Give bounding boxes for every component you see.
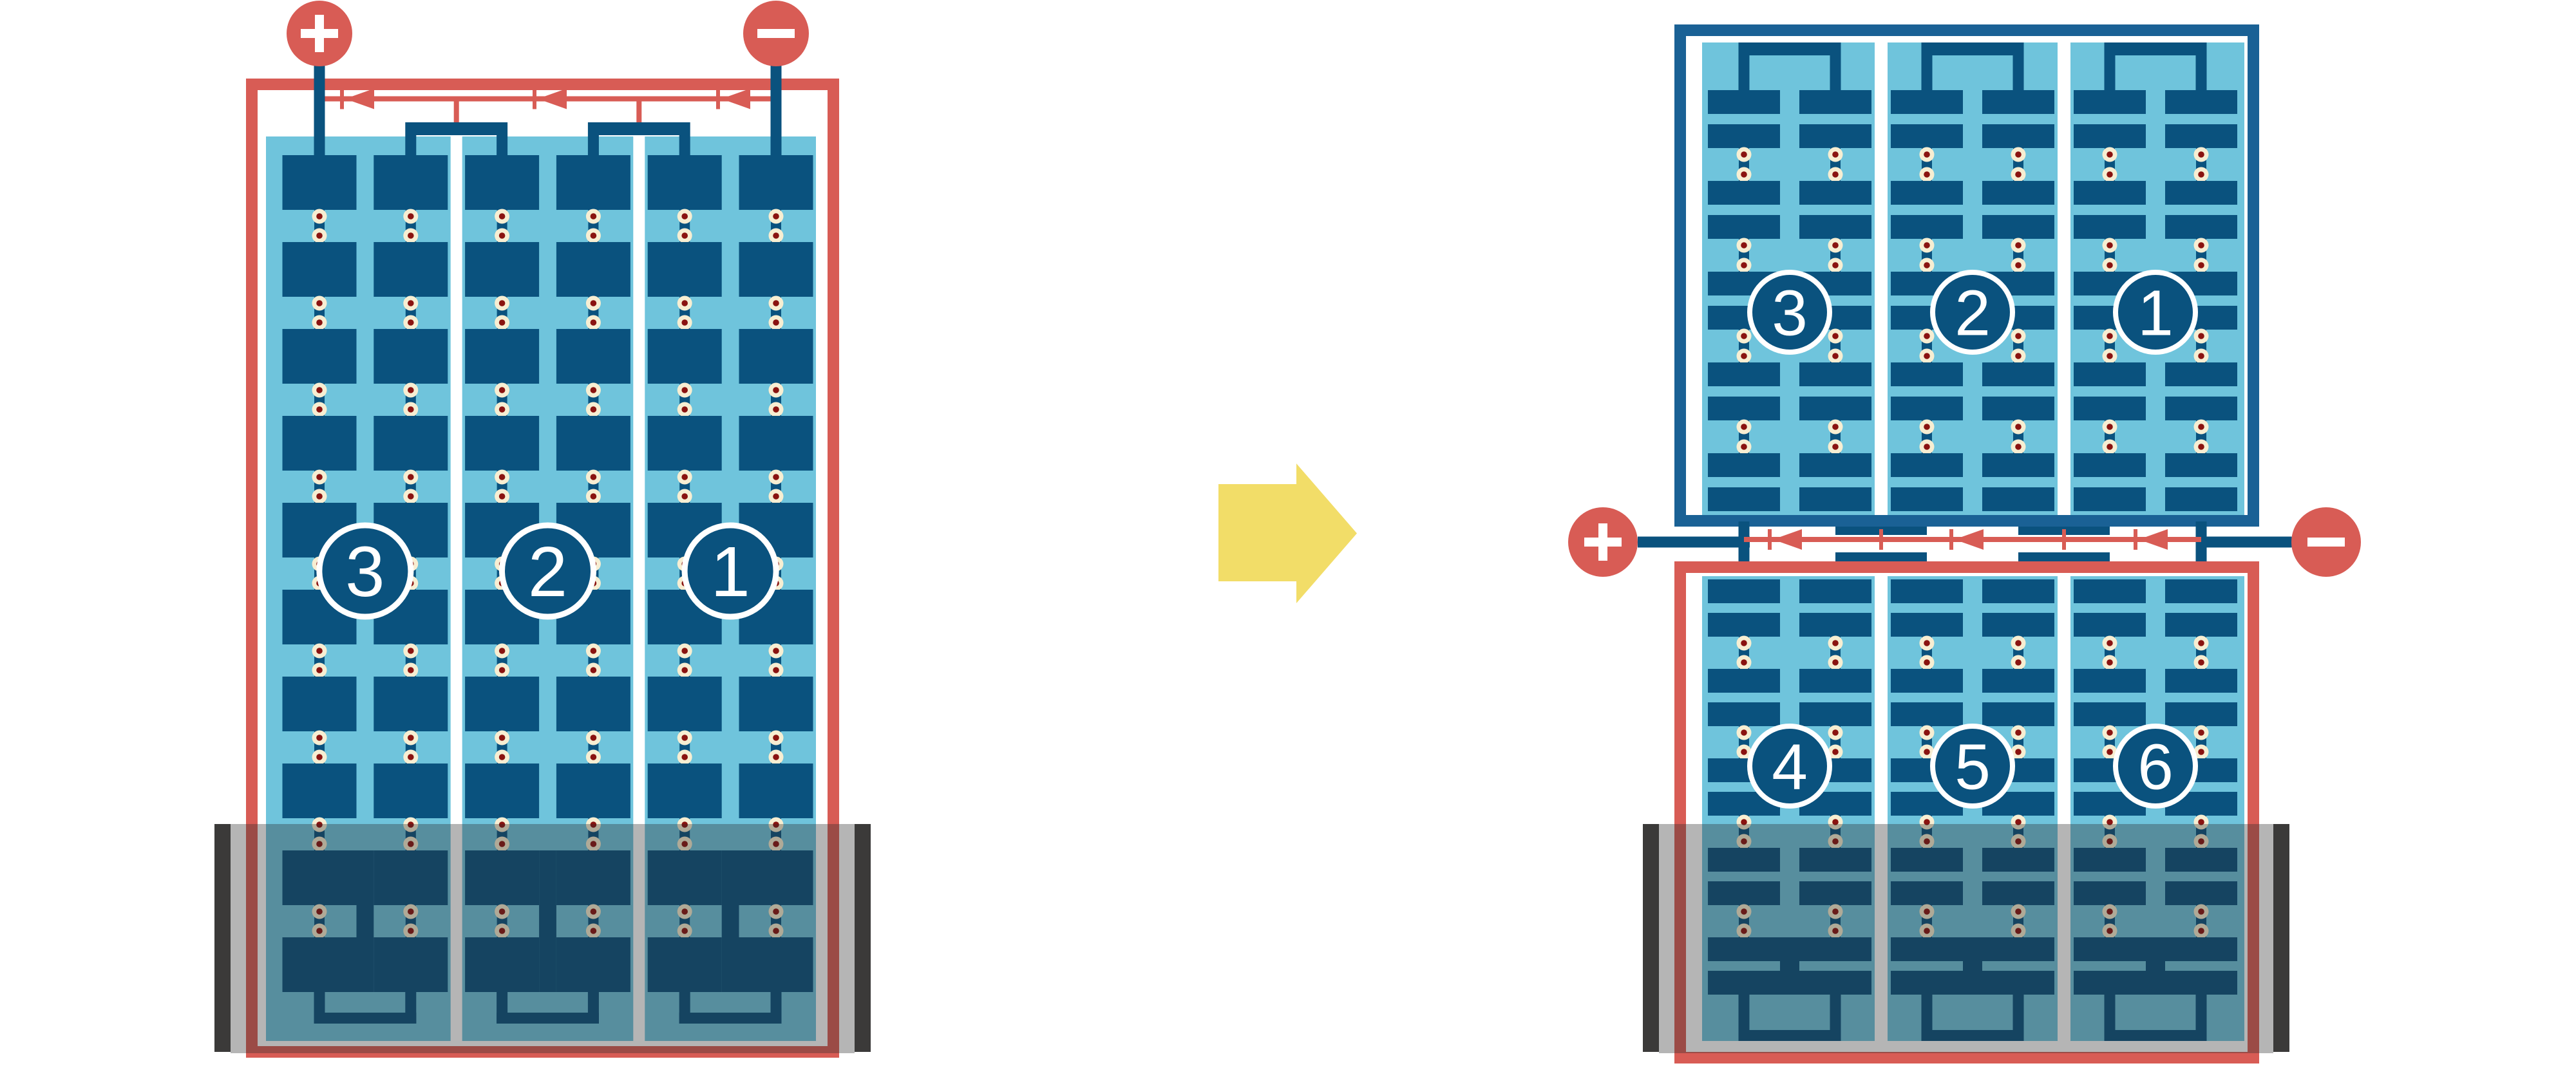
half-cut-module-comparison-diagram: 321321456	[0, 0, 2576, 1068]
rivet-dot-core	[408, 319, 414, 326]
cell	[2074, 579, 2146, 603]
rivet-dot-core	[499, 319, 506, 326]
rivet-dot-core	[591, 667, 597, 673]
diode-cathode-bar	[340, 89, 344, 109]
rivet-dot-core	[2107, 242, 2113, 248]
rivet-dot-core	[773, 474, 779, 480]
cell	[2074, 362, 2146, 386]
cell	[2165, 124, 2237, 148]
rivet-dot-core	[773, 232, 779, 239]
rivet-dot-core	[2198, 333, 2204, 339]
cell	[648, 155, 722, 210]
cell	[374, 329, 448, 384]
cell	[1891, 124, 1963, 148]
cell	[1891, 487, 1963, 511]
rivet-dot-core	[2198, 640, 2204, 646]
rivet-dot-core	[591, 493, 597, 500]
cell	[1799, 397, 1871, 420]
rivet-dot-core	[773, 319, 779, 326]
rivet-dot-core	[499, 474, 506, 480]
rivet-dot-core	[773, 648, 779, 654]
cell	[1891, 669, 1963, 693]
icon-bar	[315, 15, 324, 52]
cell	[1708, 90, 1780, 114]
rivet-dot-core	[1832, 659, 1839, 666]
loop-bar	[1739, 42, 1841, 55]
rivet-dot-core	[1832, 424, 1839, 430]
cell	[739, 764, 813, 818]
rivet-dot-core	[2107, 171, 2113, 178]
cell	[2165, 397, 2237, 420]
rivet-dot-core	[2015, 151, 2022, 158]
shade-edge-bar	[1643, 824, 1659, 1052]
rivet-dot-core	[773, 493, 779, 500]
rivet-dot-core	[1741, 659, 1747, 666]
loop-leg	[1830, 55, 1841, 90]
loop-leg	[679, 135, 690, 155]
cell	[1799, 613, 1871, 637]
cell	[1799, 579, 1871, 603]
rivet-dot-core	[316, 232, 323, 239]
rivet-dot-core	[499, 735, 506, 741]
rivet-dot-core	[681, 474, 688, 480]
cell	[1982, 362, 2054, 386]
cell	[374, 764, 448, 818]
string-number-label: 4	[1772, 731, 1808, 803]
rivet-dot-core	[1924, 171, 1930, 178]
rivet-dot-core	[773, 735, 779, 741]
rivet-dot-core	[408, 232, 414, 239]
rivet-dot-core	[681, 319, 688, 326]
cell	[2165, 613, 2237, 637]
cell	[1891, 215, 1963, 239]
cell	[2165, 669, 2237, 693]
diode-arrow	[2139, 529, 2168, 550]
cell	[739, 677, 813, 731]
string-number-label: 6	[2137, 731, 2173, 803]
rivet-dot-core	[681, 667, 688, 673]
rivet-dot-core	[316, 474, 323, 480]
rivet-dot-core	[2107, 749, 2113, 755]
rivet-dot-core	[1741, 640, 1747, 646]
cell	[648, 329, 722, 384]
cell	[2165, 487, 2237, 511]
cell	[1982, 669, 2054, 693]
cell	[739, 329, 813, 384]
rivet-dot-core	[2107, 353, 2113, 359]
cell	[283, 416, 357, 471]
cell	[465, 329, 539, 384]
right-top-module: 321	[1680, 30, 2253, 521]
rivet-dot-core	[2015, 242, 2022, 248]
string-number-label: 1	[2137, 277, 2173, 350]
rivet-dot-core	[2015, 659, 2022, 666]
series-tab	[2018, 552, 2110, 561]
rivet-dot-core	[1924, 424, 1930, 430]
rivet-dot-core	[591, 406, 597, 413]
cell	[1982, 613, 2054, 637]
loop-leg	[1922, 55, 1933, 90]
rivet-dot-core	[499, 667, 506, 673]
rivet-dot-core	[1741, 262, 1747, 268]
rivet-dot-core	[681, 213, 688, 220]
cell	[283, 764, 357, 818]
rivet-dot-core	[408, 648, 414, 654]
diode-cathode-bar	[2134, 529, 2137, 550]
loop-leg	[2105, 55, 2116, 90]
rivet-dot-core	[316, 387, 323, 393]
rivet-dot-core	[2198, 444, 2204, 450]
terminal-negative	[743, 1, 809, 66]
rivet-dot-core	[681, 735, 688, 741]
rivet-dot-core	[2198, 659, 2204, 666]
cell	[1982, 579, 2054, 603]
cell	[2074, 90, 2146, 114]
rivet-dot-core	[1924, 353, 1930, 359]
rivet-dot-core	[2015, 729, 2022, 736]
diode-drop-line	[636, 98, 641, 124]
cell	[1891, 453, 1963, 477]
cell	[1891, 613, 1963, 637]
cell	[1982, 397, 2054, 420]
rivet-dot-core	[316, 735, 323, 741]
rivet-dot-core	[773, 387, 779, 393]
cell	[1891, 90, 1963, 114]
rivet-dot-core	[2015, 353, 2022, 359]
shade-overlay-left	[214, 824, 871, 1053]
loop-bar	[1922, 42, 2024, 55]
cell	[1982, 90, 2054, 114]
diode-arrow	[1773, 529, 1802, 550]
rivet-dot-core	[2198, 242, 2204, 248]
cell	[283, 677, 357, 731]
rivet-dot-core	[316, 667, 323, 673]
loop-leg	[588, 135, 599, 155]
cell	[1708, 579, 1780, 603]
rivet-dot-core	[2107, 729, 2113, 736]
cell	[648, 677, 722, 731]
rivet-dot-core	[2107, 262, 2113, 268]
terminal-negative	[2291, 507, 2361, 577]
rivet-dot-core	[316, 319, 323, 326]
cell	[1891, 702, 1963, 726]
cell	[1708, 124, 1780, 148]
rivet-dot-core	[408, 213, 414, 220]
rivet-dot-core	[408, 406, 414, 413]
rivet-dot-core	[1741, 444, 1747, 450]
cell	[283, 155, 357, 210]
cell	[2074, 453, 2146, 477]
loop-leg	[405, 135, 416, 155]
loop-bar	[588, 122, 690, 135]
cell	[2165, 579, 2237, 603]
cell	[1799, 702, 1871, 726]
cell	[1891, 181, 1963, 205]
rivet-dot-core	[316, 648, 323, 654]
rivet-dot-core	[1741, 171, 1747, 178]
rivet-dot-core	[2107, 151, 2113, 158]
rivet-dot-core	[591, 319, 597, 326]
diode-arrow	[345, 89, 374, 109]
rivet-dot-core	[681, 493, 688, 500]
cell	[374, 155, 448, 210]
cell	[1891, 397, 1963, 420]
rivet-dot-core	[408, 387, 414, 393]
rivet-dot-core	[2015, 171, 2022, 178]
minus-icon	[757, 29, 795, 38]
loop-leg	[1739, 55, 1750, 90]
icon-bar	[1598, 523, 1607, 561]
rivet-dot-core	[1924, 333, 1930, 339]
rivet-dot-core	[591, 232, 597, 239]
rivet-dot-core	[2107, 444, 2113, 450]
rivet-dot-core	[681, 387, 688, 393]
cell	[1799, 362, 1871, 386]
rivet-dot-core	[1741, 151, 1747, 158]
rivet-dot-core	[1924, 242, 1930, 248]
rivet-dot-core	[1924, 640, 1930, 646]
cell	[1891, 362, 1963, 386]
terminal-positive	[287, 1, 352, 66]
rivet-dot-core	[316, 493, 323, 500]
diode-cathode-bar	[1768, 529, 1772, 550]
rivet-dot-core	[1832, 262, 1839, 268]
rivet-dot-core	[591, 648, 597, 654]
diode-arrow	[538, 89, 567, 109]
cell	[2165, 215, 2237, 239]
rivet-dot-core	[1924, 262, 1930, 268]
cell	[648, 764, 722, 818]
rivet-dot-core	[316, 754, 323, 760]
rivet-dot-core	[1741, 729, 1747, 736]
loop-leg	[2013, 55, 2024, 90]
rivet-dot-core	[499, 300, 506, 306]
shade-panel	[1659, 824, 2273, 1053]
diode-junction-tick	[1879, 529, 1883, 550]
rivet-dot-core	[773, 667, 779, 673]
shade-edge-bar	[2273, 824, 2289, 1052]
cell	[2165, 453, 2237, 477]
rivet-dot-core	[1832, 640, 1839, 646]
cell	[1982, 124, 2054, 148]
rivet-dot-core	[591, 754, 597, 760]
rivet-dot-core	[2107, 640, 2113, 646]
rivet-dot-core	[773, 300, 779, 306]
rivet-dot-core	[1741, 749, 1747, 755]
rivet-dot-core	[1924, 444, 1930, 450]
rivet-dot-core	[2015, 333, 2022, 339]
cell	[2074, 487, 2146, 511]
cell	[283, 329, 357, 384]
terminal-bar	[1638, 537, 1750, 548]
rivet-dot-core	[681, 754, 688, 760]
cell	[1799, 453, 1871, 477]
cell	[1799, 215, 1871, 239]
cell	[1708, 397, 1780, 420]
rivet-dot-core	[591, 735, 597, 741]
rivet-dot-core	[2015, 749, 2022, 755]
cell	[1982, 487, 2054, 511]
loop-leg	[2196, 55, 2207, 90]
cell	[556, 329, 630, 384]
cell	[283, 242, 357, 297]
cell	[2074, 702, 2146, 726]
rivet-dot-core	[499, 493, 506, 500]
cell	[1799, 124, 1871, 148]
rivet-dot-core	[2107, 659, 2113, 666]
string-number-label: 5	[1955, 731, 1991, 803]
rivet-dot-core	[681, 232, 688, 239]
cell	[556, 155, 630, 210]
rivet-dot-core	[408, 493, 414, 500]
cell	[1708, 669, 1780, 693]
rivet-dot-core	[2015, 640, 2022, 646]
string-number-label: 2	[528, 532, 567, 612]
cell	[1982, 215, 2054, 239]
cell	[1799, 669, 1871, 693]
column-separator	[2058, 42, 2070, 515]
cell	[2165, 362, 2237, 386]
rivet-dot-core	[1832, 749, 1839, 755]
cell	[556, 242, 630, 297]
rivet-dot-core	[408, 754, 414, 760]
string-number-label: 3	[1772, 277, 1808, 350]
cell	[1799, 487, 1871, 511]
diagram-canvas: 321321456	[0, 0, 2576, 1068]
rivet-dot-core	[1832, 353, 1839, 359]
cell	[2074, 181, 2146, 205]
cell	[2074, 124, 2146, 148]
rivet-dot-core	[408, 667, 414, 673]
cell	[1708, 362, 1780, 386]
rivet-dot-core	[773, 406, 779, 413]
rivet-dot-core	[1924, 659, 1930, 666]
terminal-bar	[2196, 537, 2292, 548]
shade-edge-bar	[214, 824, 231, 1052]
rivet-dot-core	[1832, 333, 1839, 339]
cell	[1708, 181, 1780, 205]
cell	[739, 155, 813, 210]
cell	[1708, 215, 1780, 239]
cell	[465, 764, 539, 818]
rivet-dot-core	[499, 387, 506, 393]
cell	[648, 416, 722, 471]
rivet-dot-core	[1924, 151, 1930, 158]
cell	[739, 242, 813, 297]
cell	[556, 764, 630, 818]
diode-cathode-bar	[716, 89, 720, 109]
rivet-dot-core	[2015, 262, 2022, 268]
loop-bar	[2105, 42, 2207, 55]
cell	[374, 416, 448, 471]
cell	[465, 155, 539, 210]
rivet-dot-core	[2198, 151, 2204, 158]
cell	[739, 416, 813, 471]
cell	[1708, 487, 1780, 511]
rivet-dot-core	[2198, 749, 2204, 755]
rivet-dot-core	[1832, 444, 1839, 450]
icon-bar	[757, 29, 795, 38]
diode-drop-line	[454, 98, 459, 124]
cell	[1891, 579, 1963, 603]
cell	[2074, 215, 2146, 239]
shade-edge-bar	[855, 824, 871, 1052]
cell	[374, 677, 448, 731]
cell	[465, 416, 539, 471]
rivet-dot-core	[2107, 333, 2113, 339]
rivet-dot-core	[408, 300, 414, 306]
string-number-label: 2	[1955, 277, 1991, 350]
arrow-right-icon	[1218, 464, 1357, 603]
rivet-dot-core	[773, 754, 779, 760]
rivet-dot-core	[1741, 424, 1747, 430]
cell	[2074, 397, 2146, 420]
cell	[556, 677, 630, 731]
cell	[1708, 613, 1780, 637]
cell	[1982, 702, 2054, 726]
cell	[2074, 613, 2146, 637]
cell	[2165, 181, 2237, 205]
string-number-label: 3	[345, 532, 384, 612]
rivet-dot-core	[1924, 729, 1930, 736]
cell	[1708, 453, 1780, 477]
rivet-dot-core	[2198, 729, 2204, 736]
diode-cathode-bar	[1949, 529, 1953, 550]
diode-junction-tick	[2062, 529, 2066, 550]
cell	[2165, 90, 2237, 114]
rivet-dot-core	[2198, 262, 2204, 268]
rivet-dot-core	[2198, 171, 2204, 178]
rivet-dot-core	[1741, 242, 1747, 248]
rivet-dot-core	[499, 406, 506, 413]
minus-icon	[2307, 538, 2345, 547]
cell	[2165, 702, 2237, 726]
shade-panel	[231, 824, 855, 1053]
cell	[1982, 453, 2054, 477]
rivet-dot-core	[1832, 151, 1839, 158]
cell	[465, 677, 539, 731]
cell	[1982, 181, 2054, 205]
cell	[1799, 90, 1871, 114]
cell	[374, 242, 448, 297]
string-number-label: 1	[711, 532, 750, 612]
loop-leg	[497, 135, 507, 155]
rivet-dot-core	[773, 213, 779, 220]
rivet-dot-core	[316, 213, 323, 220]
rivet-dot-core	[316, 406, 323, 413]
rivet-dot-core	[499, 648, 506, 654]
rivet-dot-core	[2198, 424, 2204, 430]
rivet-dot-core	[2198, 353, 2204, 359]
rivet-dot-core	[408, 474, 414, 480]
rivet-dot-core	[591, 387, 597, 393]
cell	[1799, 181, 1871, 205]
rivet-dot-core	[591, 300, 597, 306]
cell	[1708, 702, 1780, 726]
cell	[465, 242, 539, 297]
rivet-dot-core	[2015, 424, 2022, 430]
series-tab	[1835, 552, 1927, 561]
rivet-dot-core	[2015, 444, 2022, 450]
rivet-dot-core	[499, 213, 506, 220]
diode-arrow	[1955, 529, 1984, 550]
rivet-dot-core	[1924, 749, 1930, 755]
rivet-dot-core	[1832, 171, 1839, 178]
rivet-dot-core	[1741, 333, 1747, 339]
rivet-dot-core	[681, 300, 688, 306]
rivet-dot-core	[591, 474, 597, 480]
shade-overlay-right	[1643, 824, 2289, 1053]
